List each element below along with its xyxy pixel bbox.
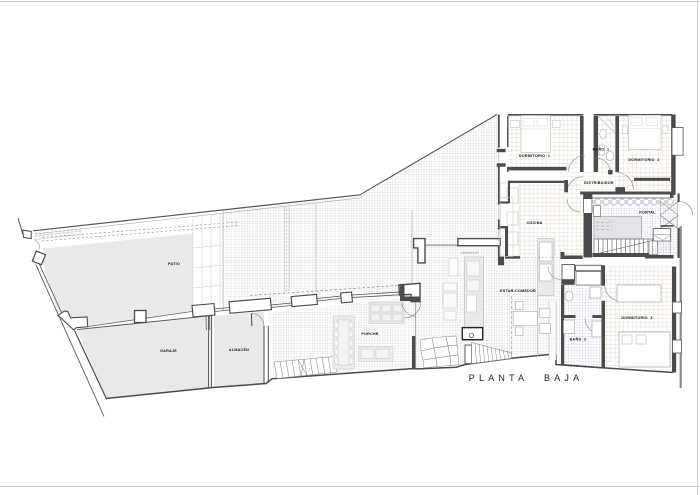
svg-text:PORTAL: PORTAL: [639, 210, 656, 214]
svg-text:GARAJE: GARAJE: [160, 349, 177, 353]
svg-text:DORMITORIO 2: DORMITORIO 2: [628, 158, 659, 162]
svg-text:PORCHE: PORCHE: [361, 332, 379, 336]
svg-text:DORMITORIO 1: DORMITORIO 1: [519, 154, 550, 158]
svg-text:BAÑO 2: BAÑO 2: [570, 336, 587, 341]
svg-text:ESTAR-COMEDOR: ESTAR-COMEDOR: [500, 289, 536, 293]
svg-text:ALMACÉN: ALMACÉN: [229, 347, 249, 352]
svg-text:BAÑO 1: BAÑO 1: [593, 146, 610, 151]
svg-text:BAJA: BAJA: [544, 373, 583, 383]
svg-text:PLANTA: PLANTA: [469, 373, 529, 383]
svg-text:DISTRIBUIDOR: DISTRIBUIDOR: [584, 181, 614, 185]
svg-text:COCINA: COCINA: [526, 221, 542, 225]
svg-text:DORMITORIO 3: DORMITORIO 3: [621, 316, 652, 320]
svg-text:PATIO: PATIO: [168, 262, 180, 266]
